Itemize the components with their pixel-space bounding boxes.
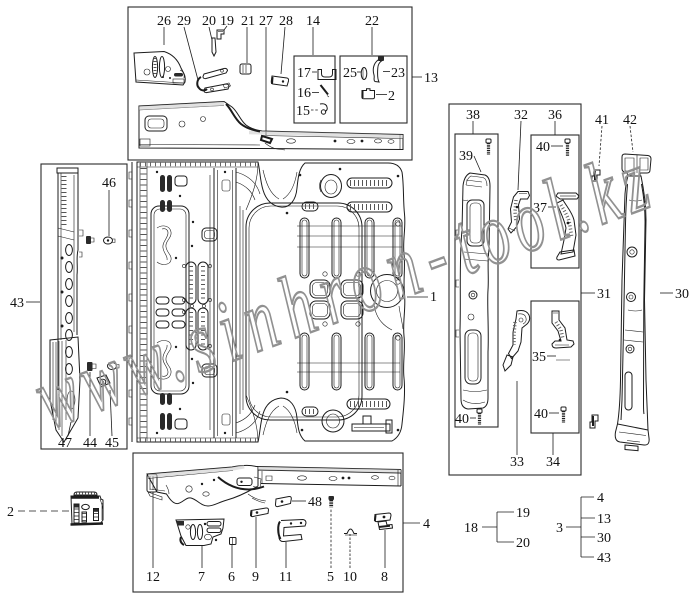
svg-text:2: 2 <box>7 505 14 520</box>
svg-text:7: 7 <box>198 570 205 585</box>
svg-text:9: 9 <box>252 570 259 585</box>
svg-text:17: 17 <box>297 66 311 81</box>
svg-text:36: 36 <box>548 108 562 123</box>
svg-text:33: 33 <box>510 455 524 470</box>
svg-text:40: 40 <box>536 140 550 155</box>
svg-text:10: 10 <box>343 570 357 585</box>
svg-text:30: 30 <box>675 287 689 302</box>
svg-text:39: 39 <box>459 149 473 164</box>
svg-text:4: 4 <box>597 491 604 506</box>
svg-text:6: 6 <box>228 570 235 585</box>
svg-text:19: 19 <box>220 14 234 29</box>
svg-text:45: 45 <box>105 436 119 451</box>
svg-text:27: 27 <box>259 14 273 29</box>
svg-text:43: 43 <box>597 551 611 566</box>
svg-text:8: 8 <box>381 570 388 585</box>
svg-text:28: 28 <box>279 14 293 29</box>
svg-text:32: 32 <box>514 108 528 123</box>
svg-text:13: 13 <box>597 512 611 527</box>
svg-text:22: 22 <box>365 14 379 29</box>
svg-text:40: 40 <box>534 407 548 422</box>
svg-text:15: 15 <box>296 104 310 119</box>
svg-text:38: 38 <box>466 108 480 123</box>
svg-text:23: 23 <box>391 66 405 81</box>
svg-text:2: 2 <box>388 89 395 104</box>
svg-text:31: 31 <box>597 287 611 302</box>
svg-text:21: 21 <box>241 14 255 29</box>
svg-text:18: 18 <box>464 521 478 536</box>
svg-text:26: 26 <box>157 14 171 29</box>
svg-text:46: 46 <box>102 176 116 191</box>
svg-text:14: 14 <box>306 14 320 29</box>
svg-text:43: 43 <box>10 296 24 311</box>
svg-text:48: 48 <box>308 495 322 510</box>
svg-text:19: 19 <box>516 506 530 521</box>
svg-text:35: 35 <box>532 350 546 365</box>
svg-text:29: 29 <box>177 14 191 29</box>
svg-text:42: 42 <box>623 113 637 128</box>
svg-text:25: 25 <box>343 66 357 81</box>
svg-text:3: 3 <box>556 521 563 536</box>
svg-text:40: 40 <box>455 412 469 427</box>
svg-text:16: 16 <box>297 86 311 101</box>
svg-text:20: 20 <box>202 14 216 29</box>
svg-text:41: 41 <box>595 113 609 128</box>
svg-text:12: 12 <box>146 570 160 585</box>
svg-text:44: 44 <box>83 436 97 451</box>
svg-text:20: 20 <box>516 536 530 551</box>
svg-text:4: 4 <box>423 517 430 532</box>
svg-text:11: 11 <box>279 570 292 585</box>
svg-text:1: 1 <box>430 290 437 305</box>
svg-text:5: 5 <box>327 570 334 585</box>
svg-text:13: 13 <box>424 71 438 86</box>
svg-text:34: 34 <box>546 455 560 470</box>
svg-text:30: 30 <box>597 531 611 546</box>
